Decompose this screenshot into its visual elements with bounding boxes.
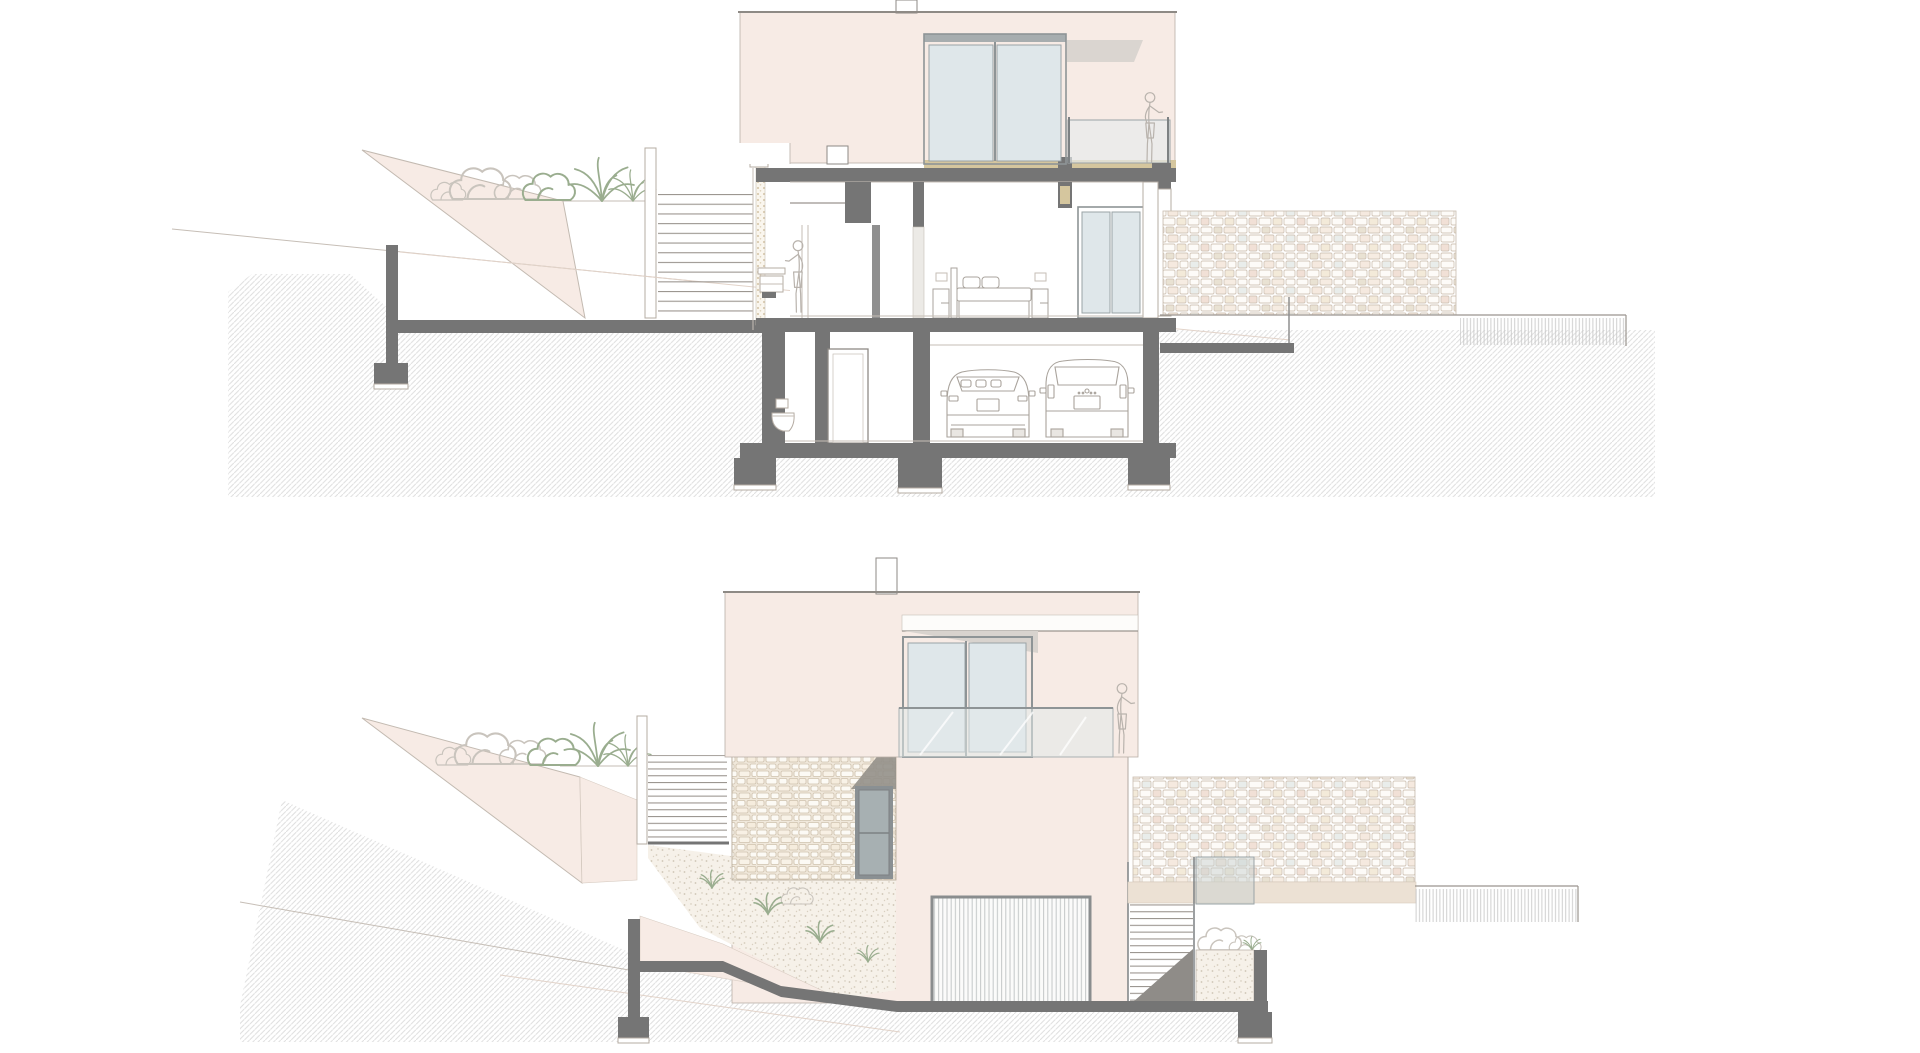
upper-terrace-notch <box>735 143 790 164</box>
section-drawing <box>172 0 1655 497</box>
car-hatchback <box>941 370 1035 437</box>
car-minivan <box>1040 360 1134 438</box>
lower-floor <box>762 332 1159 443</box>
terrace-slab <box>1160 343 1294 353</box>
right-terrace <box>1128 777 1578 1002</box>
ceiling-duct <box>845 182 871 223</box>
stone-wall <box>1133 777 1415 882</box>
insulation-strip <box>756 165 765 325</box>
balcony-glass-balustrade <box>899 708 1113 757</box>
lintel-detail <box>1060 186 1070 204</box>
staircase <box>648 755 727 843</box>
garden-wedge-return <box>580 777 637 883</box>
entrance-door <box>855 786 893 879</box>
garage-door <box>932 897 1090 1003</box>
planter-wall-cut <box>1254 950 1267 1002</box>
drawing-sheet <box>0 0 1920 1053</box>
interior-door <box>828 349 868 443</box>
elevation-drawing <box>240 558 1578 1043</box>
architectural-drawings <box>0 0 1920 1053</box>
gravel-drain-strip <box>1460 318 1626 345</box>
floor-slab-middle <box>756 318 1176 332</box>
planter-glass-screen <box>1196 857 1254 904</box>
gravel-drain-strip <box>1415 889 1578 922</box>
floor-slab-upper <box>756 168 1176 182</box>
skylight-curb <box>827 146 848 164</box>
staircase <box>658 191 753 318</box>
planter-wall <box>637 716 647 844</box>
planter-wall <box>645 148 656 318</box>
balcony-soffit-shadow <box>1067 40 1143 62</box>
planter-box <box>1196 950 1254 1002</box>
bathroom-vanity <box>758 268 785 298</box>
roof-chimney <box>876 558 897 594</box>
middle-floor <box>758 182 1158 318</box>
partition-wall <box>872 225 880 318</box>
terrace-path <box>1128 882 1416 903</box>
balcony-fascia <box>902 615 1138 631</box>
upper-sliding-window <box>924 34 1066 164</box>
planter-shrubs <box>1198 928 1261 952</box>
house-section <box>734 0 1177 493</box>
